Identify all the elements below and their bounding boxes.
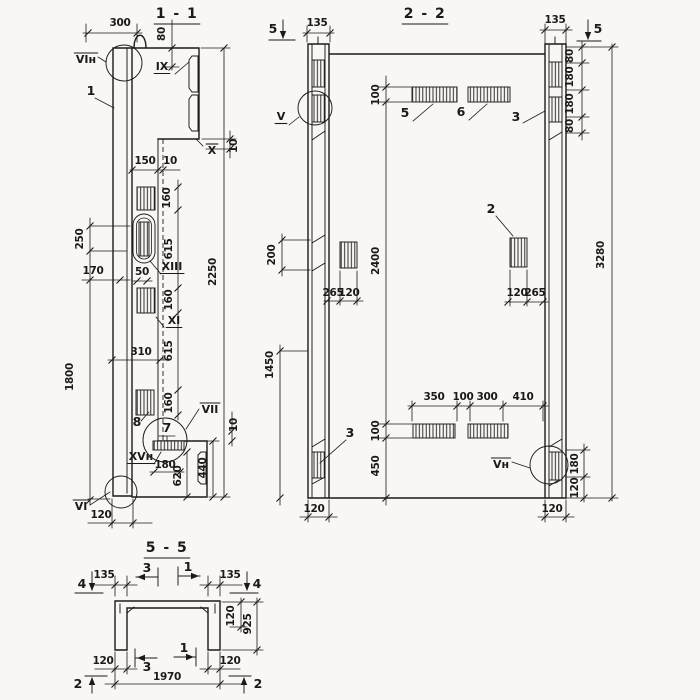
dim-label: 1450 xyxy=(264,351,276,379)
cut-marker-arrowheads xyxy=(89,573,250,685)
part-label: 8 xyxy=(133,414,142,429)
dim-label: 615 xyxy=(163,340,175,361)
dim-label: 250 xyxy=(74,228,86,249)
marker-label: 2 xyxy=(254,676,263,691)
marker-label: 1 xyxy=(184,559,193,574)
part-label: 1 xyxy=(87,83,96,98)
dim-label: 620 xyxy=(172,465,184,486)
dim-label: 100 xyxy=(370,420,382,441)
anchor-hatch xyxy=(136,390,154,415)
dim-label: 80 xyxy=(564,119,576,133)
dim-label: 300 xyxy=(476,391,497,403)
strip-anchor-hatch xyxy=(412,87,457,102)
marker-label: 4 xyxy=(78,576,87,591)
dim-label: 310 xyxy=(130,346,151,358)
dim-label: 120 xyxy=(541,503,562,515)
dim-label: 180 xyxy=(564,93,576,114)
detail-label: VIн xyxy=(76,53,96,66)
dim-label: 3280 xyxy=(595,241,607,269)
dim-label: 100 xyxy=(452,391,473,403)
part-label: 2 xyxy=(487,201,496,216)
dim-label: 10 xyxy=(228,418,240,432)
dim-label: 80 xyxy=(156,27,168,41)
strip-anchor-hatch xyxy=(468,424,508,438)
dim-label: 615 xyxy=(163,238,175,259)
anchor-hatch xyxy=(340,242,357,268)
dim-label: 135 xyxy=(306,17,327,29)
dim-label: 2250 xyxy=(207,258,219,286)
section-5-5-outline xyxy=(115,601,220,650)
dim-label: 1970 xyxy=(153,671,181,683)
dim-label: 1800 xyxy=(64,363,76,391)
dim-label: 120 xyxy=(338,287,359,299)
dim-label: 120 xyxy=(303,503,324,515)
anchor-hatch xyxy=(549,452,562,480)
anchor-hatch xyxy=(549,97,562,122)
engineering-drawing: 1 - 1300VIн180IX10X150101606152250250170… xyxy=(0,0,700,700)
dim-label: 150 xyxy=(134,155,155,167)
strip-anchor-hatch xyxy=(468,87,510,102)
part-label: 6 xyxy=(457,104,466,119)
marker-label: 3 xyxy=(143,659,152,674)
section-5-5-view: 5 - 5413531135412092512031120197022 xyxy=(74,540,263,693)
dim-label: 135 xyxy=(93,569,114,581)
dim-label: 200 xyxy=(266,244,278,265)
detail-label: X xyxy=(208,144,217,157)
section-title: 5 - 5 xyxy=(146,540,189,556)
detail-circle-VIn xyxy=(106,45,142,81)
dim-label: 120 xyxy=(219,655,240,667)
part-label: 5 xyxy=(401,105,410,120)
marker-label: 4 xyxy=(253,576,262,591)
section-title: 1 - 1 xyxy=(156,6,199,22)
part-label: 3 xyxy=(512,109,521,124)
anchor-hatch xyxy=(312,452,325,478)
detail-label: XI xyxy=(168,314,181,327)
dim-label: 160 xyxy=(163,392,175,413)
dim-label: 300 xyxy=(109,17,130,29)
detail-label: VI xyxy=(75,500,88,513)
dim-label: 170 xyxy=(82,265,103,277)
dim-label: 120 xyxy=(90,509,111,521)
strip-anchor-hatch xyxy=(413,424,455,438)
ledge-hatch xyxy=(153,441,184,450)
dim-label: 120 xyxy=(569,477,581,498)
dim-label: 135 xyxy=(544,14,565,26)
detail-label: XVн xyxy=(129,450,154,463)
anchor-hatch xyxy=(549,62,562,87)
dim-label: 50 xyxy=(135,266,149,278)
marker-label: 1 xyxy=(180,640,189,655)
anchor-hatch xyxy=(510,238,527,267)
section-1-1-view: 1 - 1300VIн180IX10X150101606152250250170… xyxy=(64,6,240,528)
part-label: 7 xyxy=(163,420,172,435)
dim-label: 10 xyxy=(163,155,177,167)
dim-label: 925 xyxy=(242,613,254,634)
detail-label: XIII xyxy=(162,260,183,273)
anchor-hatch xyxy=(137,187,155,210)
dim-label: 180 xyxy=(569,453,581,474)
anchor-hatch xyxy=(137,288,155,313)
part-label: 3 xyxy=(346,425,355,440)
section-title: 2 - 2 xyxy=(404,6,447,22)
dim-label: 180 xyxy=(564,66,576,87)
dim-label: 10 xyxy=(228,139,240,153)
marker-label: 2 xyxy=(74,676,83,691)
cut-marker-arrowheads xyxy=(280,31,591,40)
drawing-sheet: 1 - 1300VIн180IX10X150101606152250250170… xyxy=(0,0,700,700)
dim-label: 135 xyxy=(219,569,240,581)
slot-insert-hatch xyxy=(139,222,149,256)
leader-lines xyxy=(289,104,545,468)
marker-label: 5 xyxy=(594,21,603,36)
anchor-hatch xyxy=(312,60,325,87)
detail-label: V xyxy=(277,110,286,123)
dim-label: 160 xyxy=(161,187,173,208)
dim-label: 2400 xyxy=(370,247,382,275)
detail-label: IX xyxy=(156,60,169,73)
dim-label: 120 xyxy=(225,605,237,626)
dimension-ticks xyxy=(112,582,261,688)
dim-label: 80 xyxy=(564,49,576,63)
dim-label: 100 xyxy=(370,84,382,105)
dim-label: 410 xyxy=(512,391,533,403)
anchor-hatch xyxy=(312,95,325,122)
detail-label: Vн xyxy=(493,458,509,471)
dim-label: 440 xyxy=(197,457,209,478)
detail-label: VII xyxy=(202,403,219,416)
dim-label: 450 xyxy=(370,455,382,476)
dim-label: 265 xyxy=(524,287,545,299)
marker-label: 5 xyxy=(269,21,278,36)
dim-label: 120 xyxy=(92,655,113,667)
marker-label: 3 xyxy=(143,560,152,575)
dim-label: 160 xyxy=(163,289,175,310)
dim-label: 350 xyxy=(423,391,444,403)
section-2-2-view: 2 - 25135V100563135580180180803280212026… xyxy=(264,6,618,522)
